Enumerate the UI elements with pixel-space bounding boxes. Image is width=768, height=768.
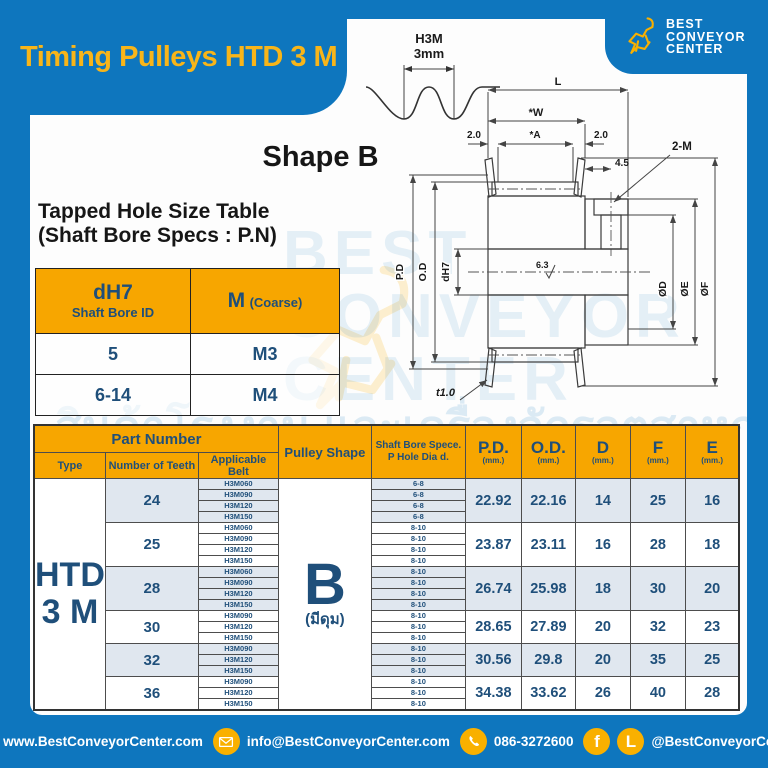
- pd-cell: 30.56: [465, 644, 521, 677]
- f-cell: 35: [630, 644, 685, 677]
- belt-cell: H3M090: [198, 644, 278, 655]
- dim-label-dE: ØE: [679, 281, 691, 296]
- belt-cell: H3M120: [198, 622, 278, 633]
- belt-cell: H3M060: [198, 479, 278, 490]
- dim-label-W: *W: [529, 107, 544, 119]
- f-cell: 28: [630, 523, 685, 567]
- f-cell: 30: [630, 567, 685, 611]
- facebook-icon: f: [583, 728, 610, 755]
- dim-label-PD: P.D: [394, 264, 406, 281]
- spec-row: HTD3 M24H3M060B(มีดุม)6-822.9222.1614251…: [34, 479, 739, 490]
- dim-label-bore: dH7: [440, 262, 452, 282]
- page-title: Timing Pulleys HTD 3 M: [20, 41, 337, 74]
- footer-social[interactable]: f L @BestConveyorCenter: [583, 728, 768, 755]
- pulley-shape-header: Pulley Shape: [278, 425, 371, 479]
- d-cell: 16: [575, 523, 630, 567]
- logo-wordmark: BEST CONVEYOR CENTER: [666, 18, 746, 56]
- teeth-cell: 28: [105, 567, 198, 611]
- e-cell: 25: [685, 644, 739, 677]
- dim-label-A: *A: [529, 130, 540, 141]
- envelope-icon: [213, 728, 240, 755]
- dim-label-left-offset: 2.0: [467, 130, 481, 141]
- belt-cell: H3M120: [198, 688, 278, 699]
- od-cell: 25.98: [521, 567, 575, 611]
- od-cell: 33.62: [521, 677, 575, 711]
- bore-cell: 8-10: [371, 556, 465, 567]
- footer-email[interactable]: info@BestConveyorCenter.com: [213, 728, 450, 755]
- shape-heading: Shape B: [228, 141, 413, 174]
- bore-cell: 6-8: [371, 512, 465, 523]
- bore-cell: 6-8: [371, 501, 465, 512]
- phone-icon: [460, 728, 487, 755]
- bore-cell: 8-10: [371, 600, 465, 611]
- spec-row: 36H3M0908-1034.3833.62264028: [34, 677, 739, 688]
- belt-cell: H3M120: [198, 545, 278, 556]
- belt-cell: H3M150: [198, 556, 278, 567]
- tapped-row: 5 M3: [36, 334, 340, 375]
- belt-cell: H3M090: [198, 490, 278, 501]
- spec-table: Part Number Pulley Shape Shaft Bore Spec…: [33, 424, 740, 711]
- dim-label-hole-offset: 4.5: [615, 158, 629, 169]
- bore-cell: 8-10: [371, 655, 465, 666]
- teeth-header: Number of Teeth: [105, 453, 198, 479]
- d-cell: 26: [575, 677, 630, 711]
- bore-cell: 8-10: [371, 589, 465, 600]
- od-header: O.D.(mm.): [521, 425, 575, 479]
- type-cell: HTD3 M: [34, 479, 105, 711]
- belt-cell: H3M150: [198, 666, 278, 677]
- pd-cell: 22.92: [465, 479, 521, 523]
- belt-cell: H3M150: [198, 600, 278, 611]
- belt-cell: H3M120: [198, 655, 278, 666]
- pd-cell: 28.65: [465, 611, 521, 644]
- teeth-cell: 24: [105, 479, 198, 523]
- title-banner: Timing Pulleys HTD 3 M: [0, 0, 347, 115]
- d-cell: 20: [575, 644, 630, 677]
- bore-cell: 8-10: [371, 666, 465, 677]
- tapped-hole-table: dH7 Shaft Bore ID M (Coarse) 5 M3 6-14 M…: [35, 268, 340, 416]
- d-cell: 18: [575, 567, 630, 611]
- dim-label-dD: ØD: [657, 281, 669, 297]
- belt-cell: H3M150: [198, 699, 278, 711]
- teeth-cell: 36: [105, 677, 198, 711]
- part-number-header: Part Number: [34, 425, 278, 453]
- teeth-cell: 32: [105, 644, 198, 677]
- tapped-col-bore-header: dH7 Shaft Bore ID: [36, 269, 191, 334]
- bore-cell: 6-8: [371, 490, 465, 501]
- bore-cell: 8-10: [371, 578, 465, 589]
- bore-cell: 8-10: [371, 534, 465, 545]
- belt-cell: H3M090: [198, 677, 278, 688]
- tapped-thread-value: M4: [191, 375, 340, 416]
- belt-profile-name: H3M: [415, 31, 442, 46]
- bore-cell: 8-10: [371, 523, 465, 534]
- f-header: F(mm.): [630, 425, 685, 479]
- pd-cell: 26.74: [465, 567, 521, 611]
- bore-cell: 8-10: [371, 611, 465, 622]
- pd-header: P.D.(mm.): [465, 425, 521, 479]
- bore-cell: 8-10: [371, 633, 465, 644]
- spec-row: 30H3M0908-1028.6527.89203223: [34, 611, 739, 622]
- tapped-row: 6-14 M4: [36, 375, 340, 416]
- belt-cell: H3M120: [198, 501, 278, 512]
- od-cell: 27.89: [521, 611, 575, 644]
- dim-label-OD: O.D: [417, 262, 429, 281]
- bore-cell: 6-8: [371, 479, 465, 490]
- surface-finish-label: 6.3: [536, 260, 549, 270]
- teeth-cell: 25: [105, 523, 198, 567]
- tapped-bore-value: 5: [36, 334, 191, 375]
- belt-cell: H3M150: [198, 512, 278, 523]
- f-cell: 25: [630, 479, 685, 523]
- belt-header: Applicable Belt: [198, 453, 278, 479]
- tapped-col-thread-header: M (Coarse): [191, 269, 340, 334]
- pulley-drawing: 6.3 L *W 2.0 *A 2.0 4.5 2-M: [388, 74, 760, 422]
- belt-cell: H3M090: [198, 534, 278, 545]
- e-header: E(mm.): [685, 425, 739, 479]
- bore-cell: 8-10: [371, 677, 465, 688]
- tapped-table-heading: Tapped Hole Size Table (Shaft Bore Specs…: [38, 200, 277, 247]
- tapped-thread-value: M3: [191, 334, 340, 375]
- od-cell: 29.8: [521, 644, 575, 677]
- teeth-cell: 30: [105, 611, 198, 644]
- f-cell: 32: [630, 611, 685, 644]
- dim-label-flange-thickness: t1.0: [436, 387, 456, 399]
- brand-logo: BEST CONVEYOR CENTER: [605, 0, 768, 74]
- bore-cell: 8-10: [371, 622, 465, 633]
- od-cell: 22.16: [521, 479, 575, 523]
- pd-cell: 23.87: [465, 523, 521, 567]
- tap-callout-label: 2-M: [672, 141, 692, 153]
- e-cell: 28: [685, 677, 739, 711]
- line-icon: L: [617, 728, 644, 755]
- belt-cell: H3M090: [198, 578, 278, 589]
- dim-label-dF: ØF: [699, 281, 711, 296]
- pd-cell: 34.38: [465, 677, 521, 711]
- bore-cell: 8-10: [371, 699, 465, 711]
- e-cell: 23: [685, 611, 739, 644]
- spec-row: 32H3M0908-1030.5629.8203525: [34, 644, 739, 655]
- d-header: D(mm.): [575, 425, 630, 479]
- bore-cell: 8-10: [371, 688, 465, 699]
- footer-contact-bar: www.BestConveyorCenter.com info@BestConv…: [0, 715, 768, 768]
- d-cell: 14: [575, 479, 630, 523]
- belt-cell: H3M060: [198, 567, 278, 578]
- catalog-page: BEST CONVEYOR CENTER สินค้าโรงงาน และเคร…: [0, 0, 768, 768]
- e-cell: 18: [685, 523, 739, 567]
- f-cell: 40: [630, 677, 685, 711]
- antelope-logo-icon: [619, 14, 659, 61]
- d-cell: 20: [575, 611, 630, 644]
- shape-cell: B(มีดุม): [278, 479, 371, 711]
- type-header: Type: [34, 453, 105, 479]
- bore-cell: 8-10: [371, 567, 465, 578]
- footer-website[interactable]: www.BestConveyorCenter.com: [0, 728, 203, 755]
- bore-cell: 8-10: [371, 545, 465, 556]
- belt-cell: H3M150: [198, 633, 278, 644]
- e-cell: 16: [685, 479, 739, 523]
- od-cell: 23.11: [521, 523, 575, 567]
- belt-profile-pitch: 3mm: [414, 46, 444, 61]
- belt-cell: H3M060: [198, 523, 278, 534]
- belt-cell: H3M090: [198, 611, 278, 622]
- dim-label-L: L: [555, 76, 562, 88]
- shaft-bore-header: Shaft Bore Spece. P Hole Dia d.: [371, 425, 465, 479]
- e-cell: 20: [685, 567, 739, 611]
- dim-label-right-offset: 2.0: [594, 130, 608, 141]
- belt-cell: H3M120: [198, 589, 278, 600]
- spec-row: 25H3M0608-1023.8723.11162818: [34, 523, 739, 534]
- spec-row: 28H3M0608-1026.7425.98183020: [34, 567, 739, 578]
- footer-phone[interactable]: 086-3272600: [460, 728, 574, 755]
- tapped-bore-value: 6-14: [36, 375, 191, 416]
- bore-cell: 8-10: [371, 644, 465, 655]
